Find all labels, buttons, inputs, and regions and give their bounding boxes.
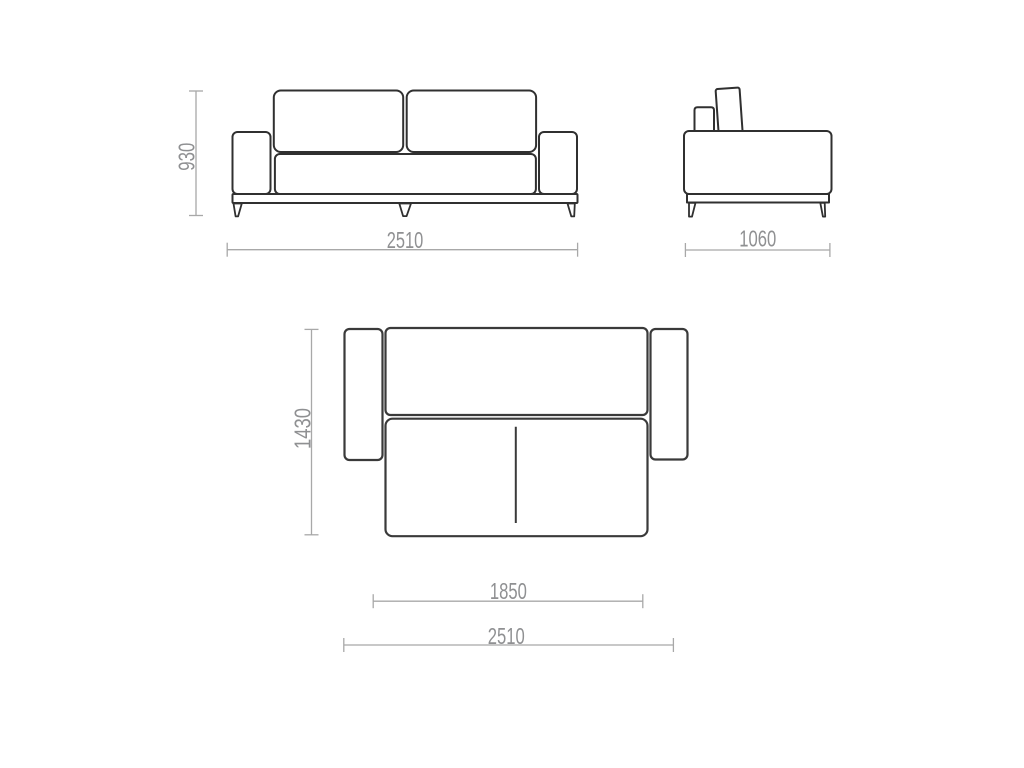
svg-text:2510: 2510 [488,623,525,649]
svg-text:1060: 1060 [739,226,776,252]
svg-text:930: 930 [174,143,200,171]
svg-text:2510: 2510 [387,227,424,253]
svg-text:1430: 1430 [290,408,316,449]
svg-text:1850: 1850 [490,578,527,604]
